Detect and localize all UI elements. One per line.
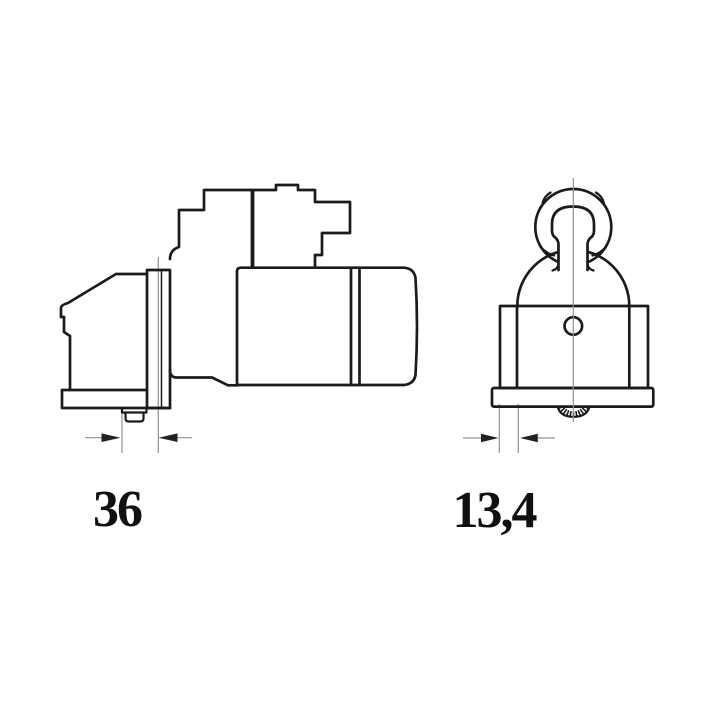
mounting-foot (62, 390, 170, 408)
center-housing-bottom (170, 370, 238, 385)
nose-housing-outline (61, 274, 147, 390)
side-view: 36 (61, 185, 417, 538)
dimension-arrow-right (159, 433, 178, 442)
side-view-dimension-label: 36 (93, 481, 142, 538)
dimension-arrow-left (481, 434, 499, 443)
dimension-arrow-left (102, 433, 121, 442)
base-flange (492, 388, 653, 407)
drawing-canvas: 36 (0, 0, 720, 720)
front-view-dimension-label: 13,4 (453, 482, 538, 539)
front-view: 13,4 (453, 178, 654, 539)
solenoid-outline (170, 185, 350, 268)
dimension-arrow-right (520, 434, 538, 443)
motor-body-outline (237, 268, 417, 385)
technical-drawing: 36 (0, 0, 720, 720)
foot-stud (122, 408, 147, 422)
